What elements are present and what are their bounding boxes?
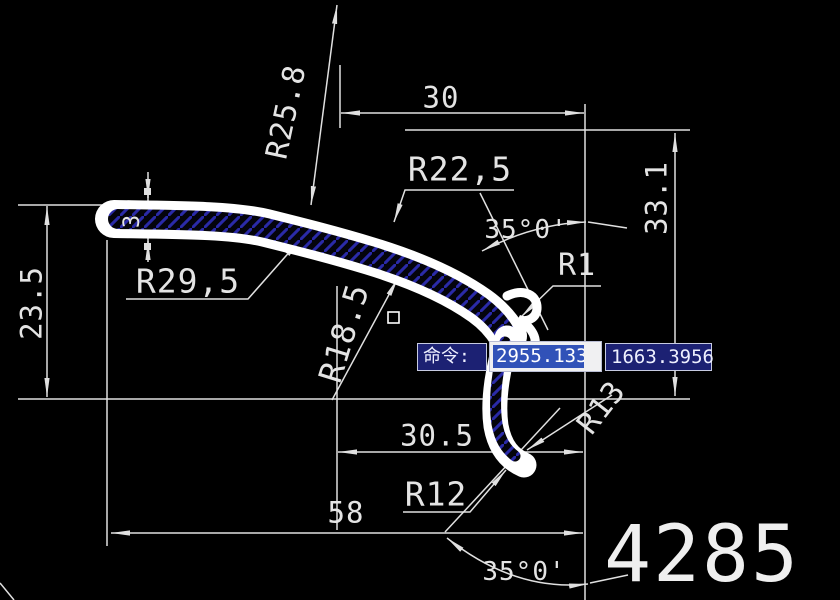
dim-mid-width-label: 30.5 (400, 422, 474, 451)
dim-top-width-label: 30 (423, 84, 460, 113)
dim-wall-label: 3 (122, 214, 144, 228)
dim-angle-top-label: 35°0' (484, 217, 567, 243)
dim-bottom-width-label: 58 (328, 499, 365, 528)
corner-tick (0, 583, 14, 600)
dim-r22-5-label: R22,5 (408, 153, 512, 186)
coord-x-input[interactable]: 2955.1335 (489, 341, 602, 372)
dim-angle-bottom-label: 35°0' (482, 559, 565, 585)
dim-r29-5-label: R29,5 (136, 265, 240, 298)
dim-r1-label: R1 (558, 251, 596, 281)
wall-dim-tick-top (144, 188, 151, 195)
angle-top-tail (588, 222, 627, 228)
coord-y-input[interactable]: 1663.3956 (605, 343, 712, 371)
pickbox-cursor (388, 312, 399, 323)
wall-dim-tick-bottom (144, 243, 151, 250)
dim-r12-label: R12 (405, 478, 468, 511)
command-prompt-box: 命令: (417, 343, 487, 371)
drawing-number: 4285 (604, 516, 800, 594)
drawing-canvas[interactable]: 30 R25.8 R22,5 35°0' R1 33.1 R29,5 23.5 … (0, 0, 840, 600)
dim-left-height-label: 23.5 (18, 266, 47, 340)
coord-x-value: 2955.1335 (493, 345, 584, 368)
leader-r25-8 (311, 5, 337, 205)
dim-right-height-label: 33.1 (643, 161, 672, 235)
